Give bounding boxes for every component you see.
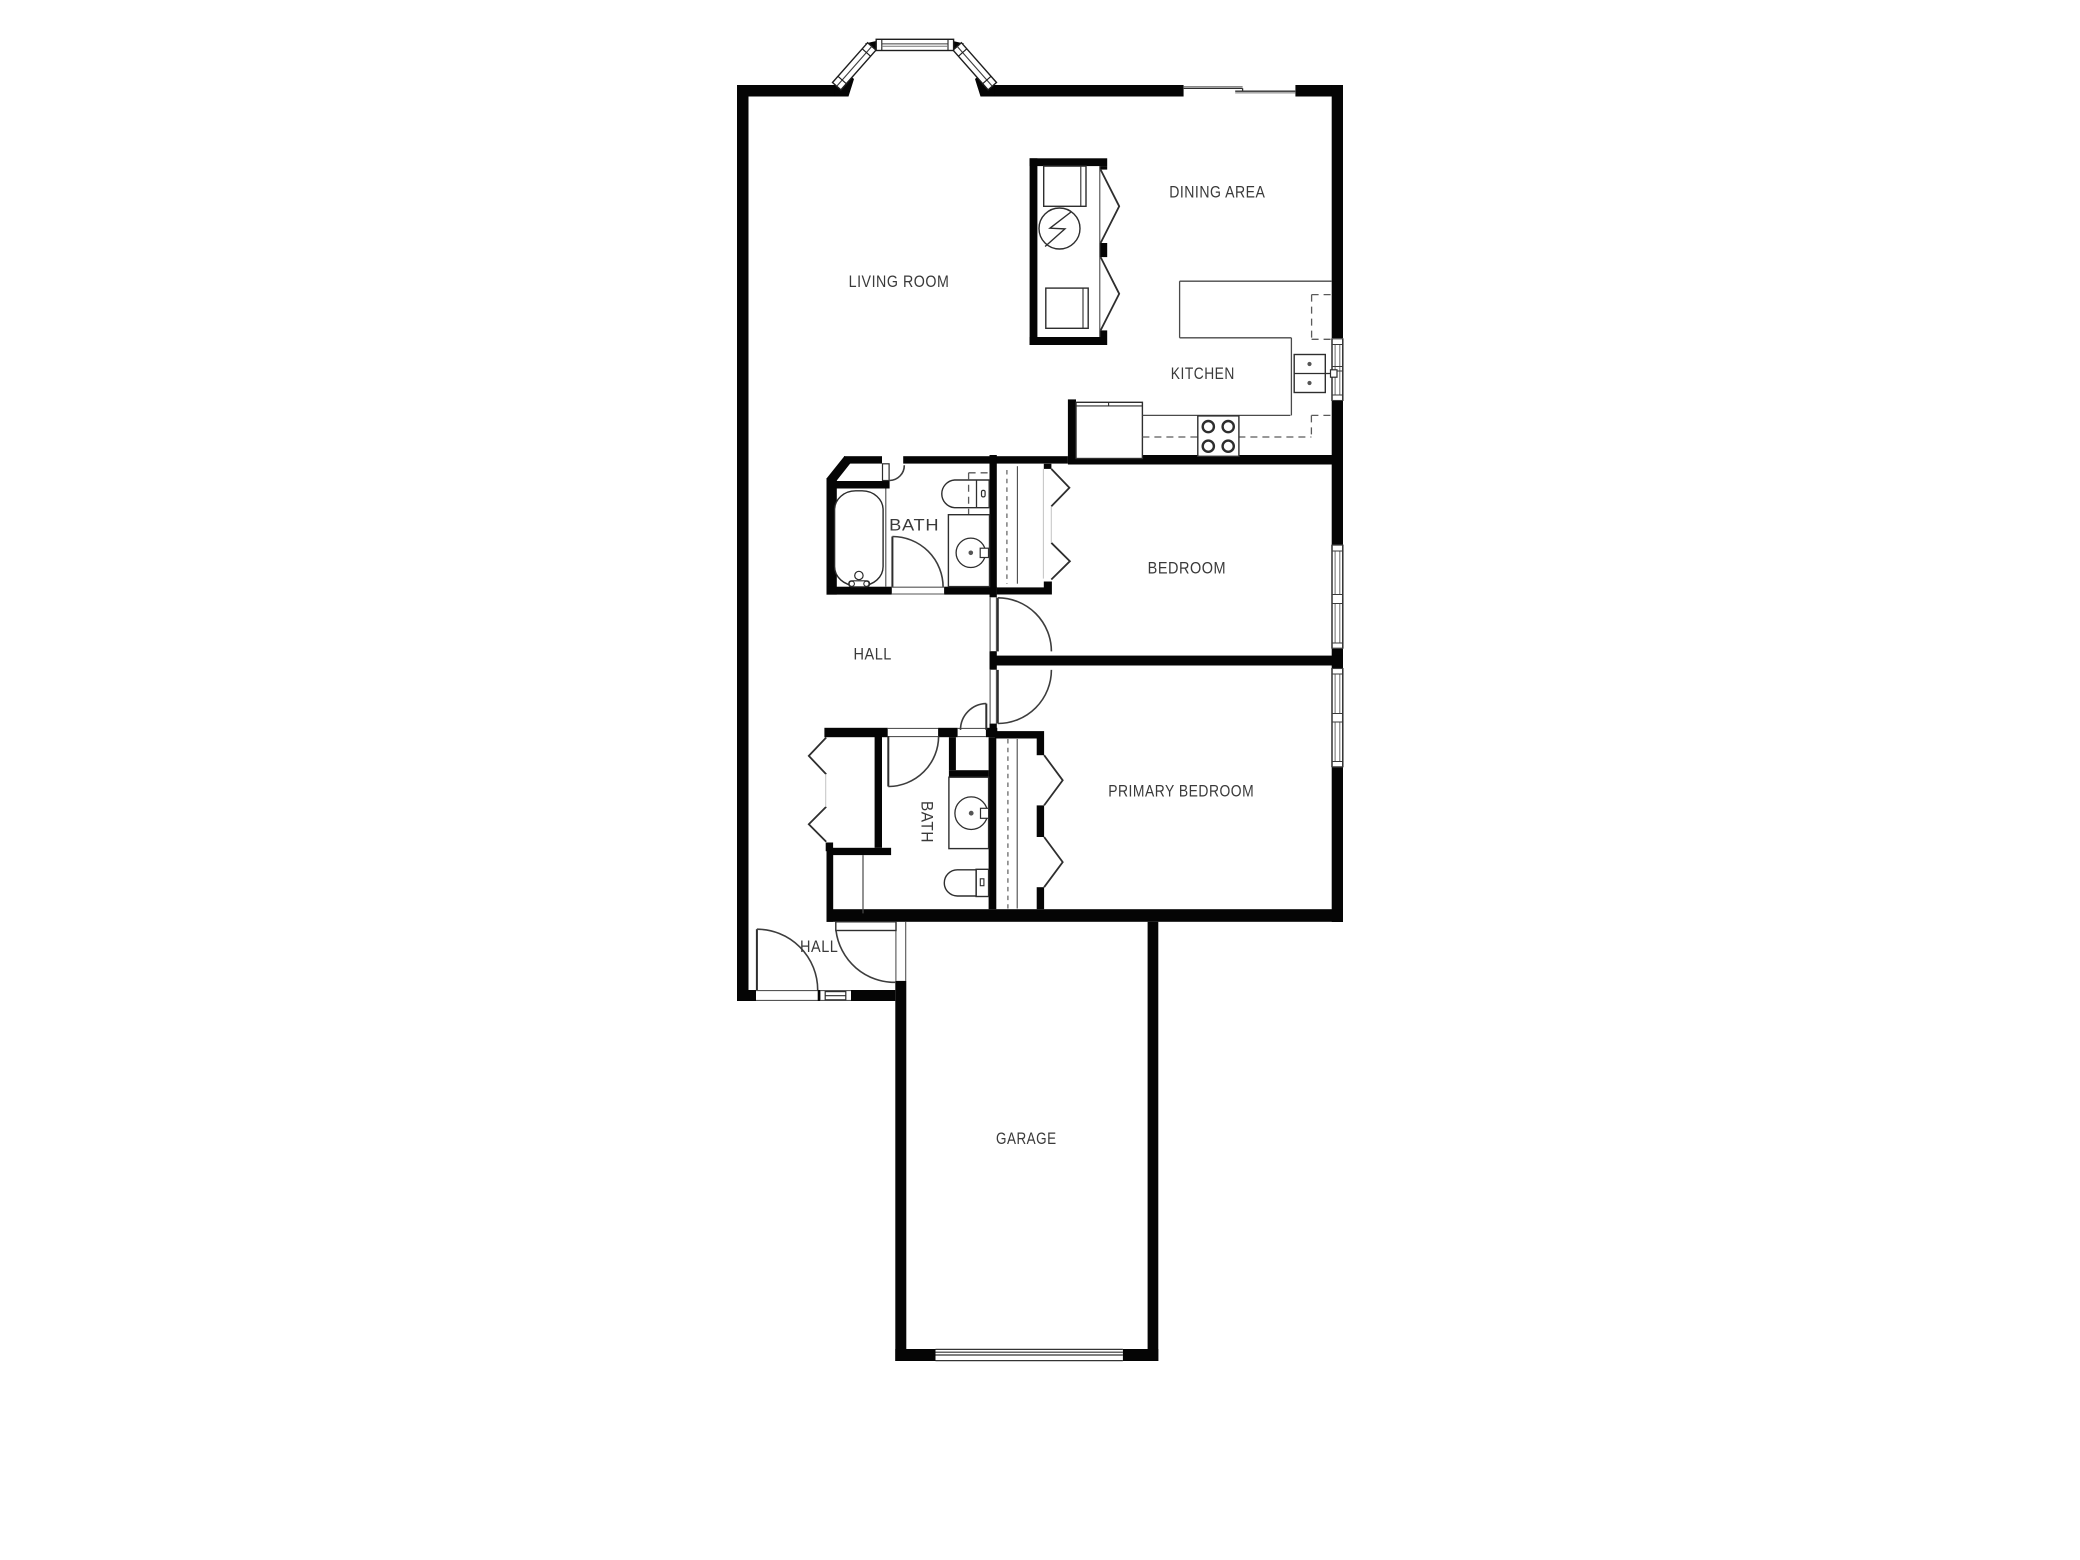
svg-text:HALL: HALL <box>854 646 892 664</box>
svg-text:PRIMARY BEDROOM: PRIMARY BEDROOM <box>1108 783 1254 801</box>
svg-text:BATH: BATH <box>918 801 936 843</box>
svg-text:HALL: HALL <box>800 938 838 956</box>
svg-text:BEDROOM: BEDROOM <box>1148 560 1227 578</box>
svg-text:BATH: BATH <box>889 517 939 535</box>
svg-text:GARAGE: GARAGE <box>996 1130 1057 1148</box>
svg-text:DINING AREA: DINING AREA <box>1169 184 1265 202</box>
svg-text:KITCHEN: KITCHEN <box>1171 365 1235 383</box>
svg-text:LIVING ROOM: LIVING ROOM <box>849 273 950 291</box>
